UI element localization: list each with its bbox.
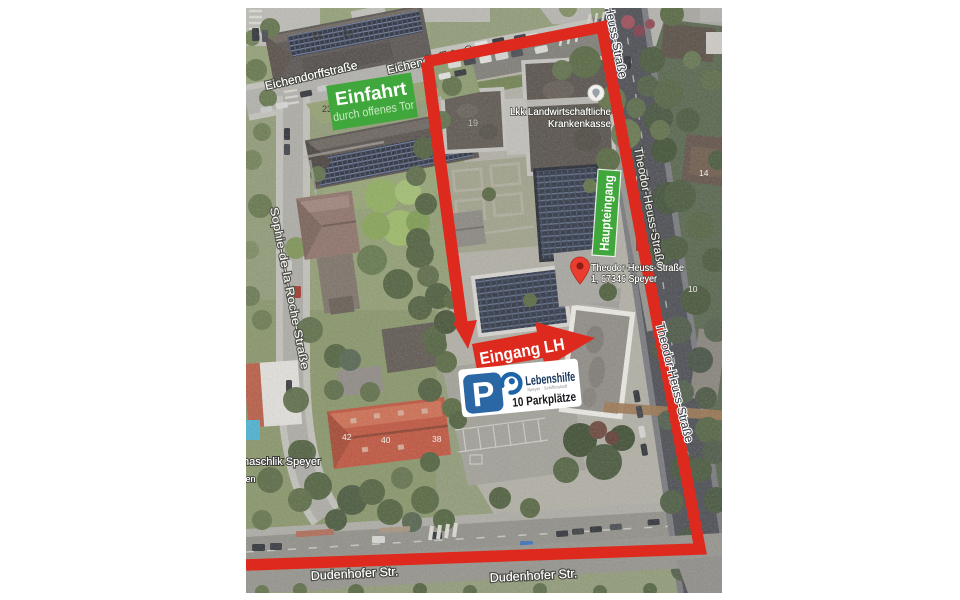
svg-text:19: 19	[468, 118, 478, 128]
svg-text:P: P	[470, 375, 496, 415]
svg-text:42: 42	[342, 432, 352, 442]
svg-text:Krankenkasse: Krankenkasse	[548, 118, 611, 130]
svg-text:haschlik Speyer: haschlik Speyer	[243, 456, 321, 468]
svg-text:40: 40	[381, 435, 391, 445]
svg-text:10: 10	[688, 284, 698, 294]
svg-text:38: 38	[432, 434, 442, 444]
svg-text:12: 12	[312, 30, 322, 40]
svg-text:14: 14	[699, 168, 709, 178]
svg-text:Lkk Landwirtschaftliche: Lkk Landwirtschaftliche	[510, 106, 611, 118]
svg-text:10: 10	[343, 28, 353, 38]
svg-text:1, 67346 Speyer: 1, 67346 Speyer	[591, 273, 657, 285]
